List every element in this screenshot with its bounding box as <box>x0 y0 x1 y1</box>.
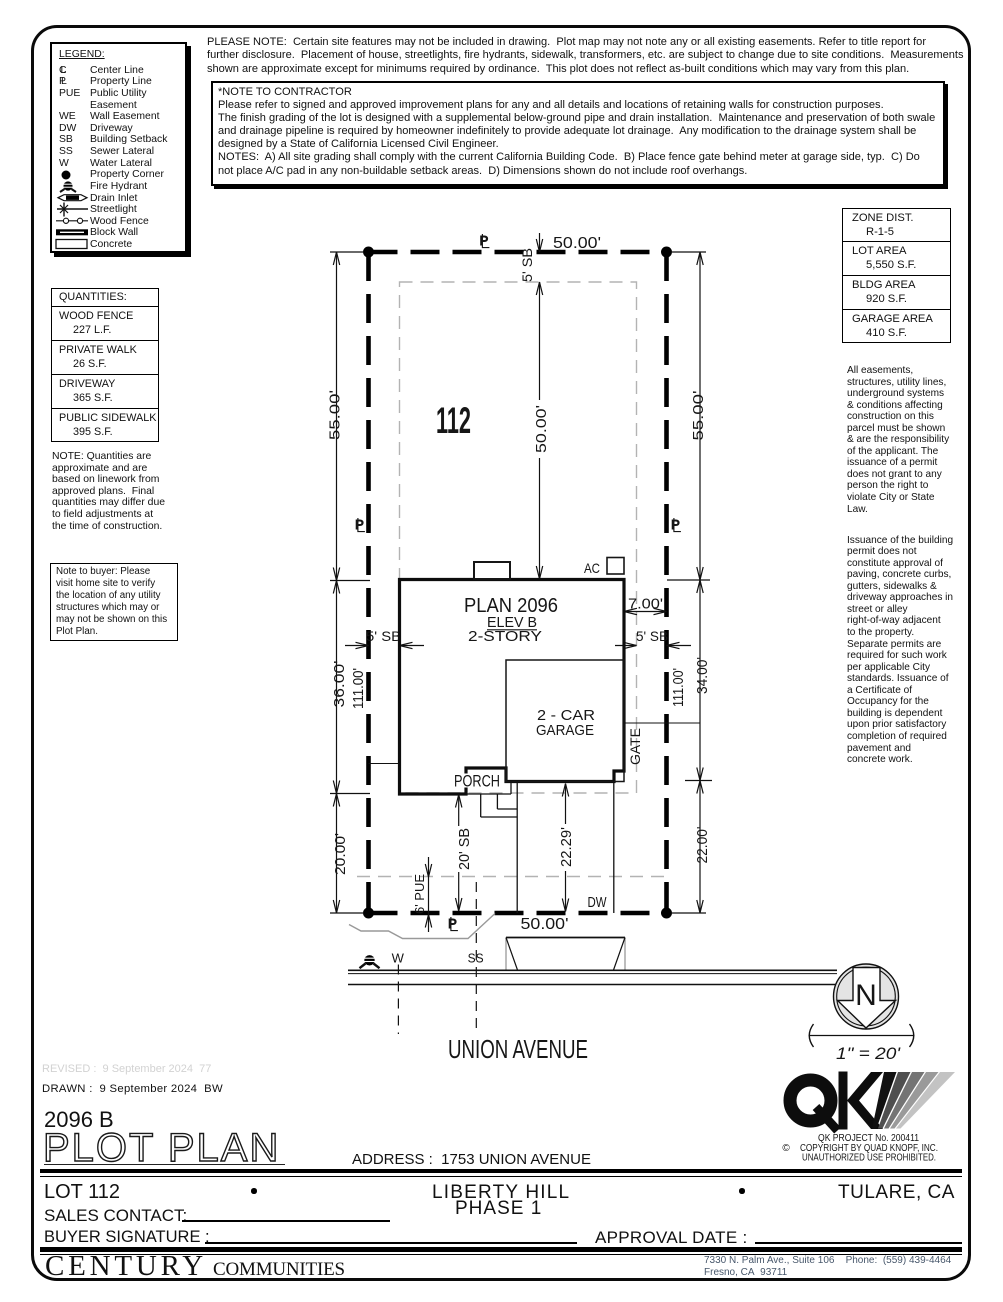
svg-text:50.00': 50.00' <box>521 916 569 933</box>
svg-text:5' SB: 5' SB <box>519 248 535 282</box>
svg-text:55.00': 55.00' <box>690 390 707 440</box>
svg-text:P: P <box>480 233 489 248</box>
svg-text:GATE: GATE <box>627 728 643 765</box>
svg-text:36.00': 36.00' <box>331 660 348 707</box>
svg-text:W: W <box>392 951 405 966</box>
svg-text:111.00': 111.00' <box>670 668 687 707</box>
svg-text:1" = 20': 1" = 20' <box>836 1044 901 1063</box>
svg-text:DW: DW <box>588 894 608 911</box>
svg-text:7.00': 7.00' <box>628 596 663 613</box>
svg-text:55.00': 55.00' <box>327 390 344 440</box>
svg-text:©: © <box>782 1143 790 1154</box>
svg-text:6' PUE: 6' PUE <box>412 874 427 914</box>
svg-text:34.00': 34.00' <box>694 657 711 694</box>
svg-text:112: 112 <box>436 400 471 441</box>
svg-text:50.00': 50.00' <box>553 235 601 252</box>
svg-text:PORCH: PORCH <box>454 772 500 791</box>
svg-text:5' SB: 5' SB <box>636 628 668 644</box>
svg-text:N: N <box>855 979 877 1012</box>
svg-text:UNAUTHORIZED USE PROHIBITED.: UNAUTHORIZED USE PROHIBITED. <box>802 1152 936 1164</box>
svg-text:20.00': 20.00' <box>332 833 349 875</box>
svg-text:5' SB: 5' SB <box>366 628 401 644</box>
svg-text:22.29': 22.29' <box>558 827 575 867</box>
svg-text:P: P <box>671 517 680 532</box>
svg-text:20' SB: 20' SB <box>457 828 473 870</box>
svg-text:2-STORY: 2-STORY <box>468 629 542 645</box>
svg-text:50.00': 50.00' <box>533 405 550 453</box>
svg-text:22.00': 22.00' <box>694 826 711 863</box>
svg-text:GARAGE: GARAGE <box>536 722 594 739</box>
svg-text:P: P <box>448 916 457 931</box>
svg-text:UNION AVENUE: UNION AVENUE <box>448 1034 588 1064</box>
svg-text:111.00': 111.00' <box>350 668 367 709</box>
svg-text:AC: AC <box>584 560 600 576</box>
svg-text:P: P <box>355 517 364 532</box>
